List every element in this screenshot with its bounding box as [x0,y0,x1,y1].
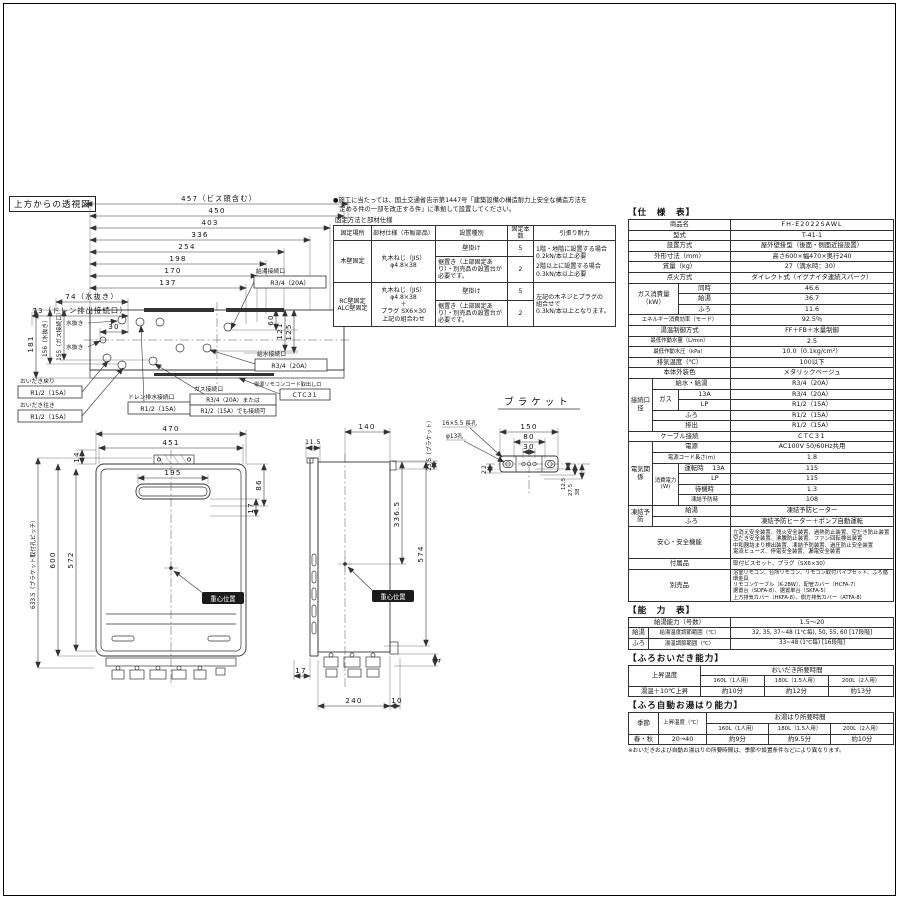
spec-dims-label: 外形寸法（mm） [629,251,731,262]
rc-place-line1: RC壁固定 [335,298,370,305]
topview-left-dims [32,310,149,378]
front-dim-195: 195 [164,468,181,477]
oidaki-col-rise: 上昇温度 [629,665,701,686]
yuhari-col-season: 季節 [629,713,659,734]
wood-pull-line1b: 0.2kN/本以上必要 [536,253,614,260]
gas-size-1: R3/4（20A）または [206,397,260,404]
rc-place-line2: ALC壁固定 [335,305,370,312]
spec-gas-row1-label: 給湯 [679,294,731,305]
capacity-title: 【能 力 表】 [628,604,898,616]
side-ext-lines [294,428,438,710]
spec-minflow-value: 2.5 [731,336,894,347]
spec-frost-hot-label: 給湯 [653,506,731,517]
capacity-hot-label: 給湯 [629,628,649,639]
cord-size: CTC31 [292,392,317,399]
label-bath-return: おいだき戻り R1/2（15A） [18,361,108,398]
dim-121: 121 [275,322,284,339]
spec-frost-furo-value: 凍結予防ヒーター＋ポンプ自動運転 [731,516,894,527]
fixing-wood-num1: 5 [508,241,534,257]
spec-watt-lp-value: 115 [731,474,894,485]
spec-accessory-label: 付属品 [629,559,731,570]
yuhari-size-180: 180L（1.5人用） [769,723,831,734]
cord-name: 電源リモコンコード取出し口 [254,380,321,388]
bracket-hole-labels: 16×5.5 長孔 φ13孔 [442,419,504,462]
oidaki-size-200: 200L（2人用） [829,676,894,687]
dim-457: 457（ビス頭含む） [181,194,257,203]
capacity-furo-label: ふろ [629,639,649,650]
rc-part-line1: 丸木ねじ（JIS） [373,287,434,294]
side-dim-574: 574 [416,545,425,562]
side-dim-11-5: 11.5 [305,439,321,446]
fixing-rc-place: RC壁固定 ALC壁固定 [334,283,372,327]
spec-weight-label: 質量（kg） [629,262,731,273]
spec-color-label: 本体外装色 [629,368,731,379]
spec-install-label: 設置方式 [629,241,731,252]
hot-out-name: 給湯接続口 [256,267,285,275]
bracket-body [486,448,590,494]
spec-frost-hot-value: 凍結予防ヒーター [731,506,894,517]
spec-table: 商品名FH-E2022SAWL 型式T-41-1 設置方式屋外壁掛型（後面・側面… [628,219,894,602]
water-in-name: 給水接続口 [257,350,286,358]
bath-go-name: おいだき往き [20,401,55,409]
yuhari-size-160: 160L（1人用） [707,723,769,734]
spec-gas-row2-label: ふろ [679,304,731,315]
spec-conn-gaslp-label: LP [679,400,731,411]
oidaki-size-160: 160L（1人用） [701,676,765,687]
wood-part-line2: φ4.8×38 [373,262,434,269]
capacity-hot-range-value: 32, 35, 37~48 (1℃毎), 50, 55, 60 [17段階] [731,628,894,639]
spec-conn-gas13-label: 13A [679,389,731,400]
spec-wattage-label: 消費電力(W) [653,463,679,505]
yuhari-size-200: 200L（2人用） [831,723,894,734]
dim-336: 336 [191,230,208,239]
spec-safety-label: 安心・安全機能 [629,527,731,559]
side-dim-17: 17 [295,666,307,675]
drain-name: ドレン排水接続口 [128,393,175,401]
oidaki-title: 【ふろおいだき能力】 [628,652,898,664]
side-dim-23-5: 23.5（ブラケット） [425,417,433,471]
spec-gas-row0-label: 同時 [679,283,731,294]
spec-watt-standby-value: 1.3 [731,484,894,495]
side-dim-lines [294,432,435,706]
spec-accessory-value: 取付ビスセット、プラグ（SX6×30） [731,559,894,570]
watt-13a-label: 13A [712,465,725,473]
spec-safety-value: 立消え安全装置、残火安全装置、過熱防止装置、空だき防止装置 空だき安全装置、沸騰… [731,527,894,559]
fixing-rc-num1: 5 [508,283,534,301]
bracket-dim-38: 38 [575,488,581,495]
side-cog: 重心位置 [338,557,414,602]
bath-return-size: R1/2（15A） [30,390,69,397]
spec-ctrl-value: FF＋FB＋水量制御 [731,325,894,336]
bath-return-name: おいだき戻り [20,377,55,385]
dim-403: 403 [201,218,218,227]
spec-model-label: 型式 [629,230,731,241]
front-dim-470: 470 [162,424,179,433]
fixing-header-part: 部材仕様（市販部品） [372,226,436,241]
spec-watt-runlp-label: LP [679,474,731,485]
yuhari-season: 春・秋 [629,734,659,745]
spec-title: 【仕 様 表】 [628,206,898,218]
mizunuki-label-2: 水抜き [66,343,83,351]
fixing-wood-part: 丸木ねじ（JIS） φ4.8×38 [372,241,436,283]
optional-line-4: 上方排気カバー（HKFA-8）、側方排気カバー（ATFA-8） [733,595,892,601]
watt-run-label: 運転時 [684,465,703,473]
yuhari-col-time: お湯はり所要時間 [707,713,894,724]
side-dim-10: 10 [391,696,403,705]
bracket-dim-22: 22 [481,464,488,474]
spec-conn-gaslp-value: R1/2（15A） [731,400,894,411]
wood-part-line1: 丸木ねじ（JIS） [373,255,434,262]
spec-ignition-label: 点火方式 [629,272,731,283]
spec-product-label: 商品名 [629,220,731,231]
bracket-hole1-label: 16×5.5 長孔 [442,419,477,427]
fixing-wood-type2: 据置き（上部固定あり）・別売品の設置台が必要です。 [436,257,508,283]
rc-part-line2: φ4.8×38 [373,294,434,301]
front-cog-label: 重心位置 [210,594,235,603]
dim-30: 30 [108,322,120,331]
bracket-hole2-label: φ13孔 [446,432,463,440]
spec-ctrl-label: 湯温制御方式 [629,325,731,336]
spec-gas-label: ガス消費量（kW） [629,283,679,315]
fixing-note-line2: 定める件の一部を改正する件」に準拠して設置してください。 [333,206,625,215]
spec-eff-label: エネルギー消費効率（モード） [629,315,731,326]
dim-74: 74（水抜き） [65,292,118,301]
spec-watt-frost-value: 108 [731,495,894,506]
bracket-dim-80: 80 [523,432,535,441]
spec-weight-value: 27（満水時：30） [731,262,894,273]
rc-part-line4: プラグ SX6×30 [373,308,434,315]
fixing-table: 固定場所 部材仕様（市販部品） 設置種別 固定本数 引張り耐力 木壁固定 丸木ね… [333,225,616,327]
yuhari-rise: 20→40 [659,734,707,745]
spec-cable-label: ケーブル接続 [629,431,731,442]
front-dim-633-5: 633.5（ブラケット取付孔ピッチ） [29,517,37,609]
side-cog-label: 重心位置 [380,592,405,601]
capacity-furo-range-value: 33~48 (1℃毎) [16段階] [731,639,894,650]
yuhari-time-200: 約10分 [831,734,894,745]
yuhari-table: 季節上昇温度（℃）お湯はり所要時間 160L（1人用）180L（1.5人用）20… [628,712,894,745]
spec-watt-13a-value: 115 [731,463,894,474]
spec-gas-row1-value: 36.7 [731,294,894,305]
fixing-caption: 固定方法と部材仕様 [335,215,625,224]
rc-part-line5: 上記の組合わせ [373,316,434,323]
wood-pull-line2b: 0.3kN/本以上必要 [536,271,614,278]
yuhari-time-160: 約9分 [707,734,769,745]
bracket-dim-12-5: 12.5 [561,477,567,490]
dim-137: 137 [159,278,176,287]
fixing-rc-type2: 据置き（上部固定あり）・別売品の設置台が必要です。 [436,301,508,327]
spec-product-value: FH-E2022SAWL [731,220,894,231]
fixing-rc-pull: 左記の木ネジとプラグの 組合せで 0.3kN/本以上となります。 [534,283,616,327]
oidaki-time-160: 約10分 [701,686,765,697]
bracket-drawing: ブラケット 150 80 30 22 12.5 27.5 38 16×5.5 長… [440,392,636,522]
front-dim-14: 14 [72,451,81,463]
side-dim-336-5: 336.5 [392,501,401,528]
spec-section: 【仕 様 表】 商品名FH-E2022SAWL 型式T-41-1 設置方式屋外壁… [628,204,898,754]
spec-minpress-value: 10.0（0.1kg/cm²） [731,347,894,358]
topview-drawing: 457（ビス頭含む） 450 403 336 254 198 170 137 7… [4,192,372,434]
dim-60: 60 [266,314,275,326]
topview-ports [100,316,232,369]
spec-exhaust-label: 排気温度（℃） [629,357,731,368]
fixing-rc-type1: 壁掛け [436,283,508,301]
fixing-rc-num2: 2 [508,301,534,327]
spec-conn-water-value: R3/4（20A） [731,378,894,389]
spec-watt-frost-label: 凍結予防時 [679,495,731,506]
spec-gas-row0-value: 46.6 [731,283,894,294]
front-dim-600: 600 [48,551,57,568]
oidaki-size-180: 180L（1.5人用） [765,676,829,687]
dim-125: 125 [284,323,293,340]
capacity-table: 給湯能力（号数）1.5～20 給湯給湯温度調節範囲（℃）32, 35, 37~4… [628,617,894,650]
spec-power-value: AC100V 50/60Hz共用 [731,442,894,453]
fixing-header-place: 固定場所 [334,226,372,241]
wood-pull-line2: 2階以上に設置する場合 [536,263,614,270]
dim-73: 73（ドレン排出接続口） [32,306,127,315]
fixing-rc-part: 丸木ねじ（JIS） φ4.8×38 ＋ プラグ SX6×30 上記の組合わせ [372,283,436,327]
yuhari-note: ※おいだきおよび自動お湯はりの所要時間は、季節や設置条件などにより異なります。 [628,746,898,754]
fixing-header-pull: 引張り耐力 [534,226,616,241]
gas-size-2: R1/2（15A）でも接続可 [200,407,265,415]
spec-watt-standby-label: 待機時 [679,484,731,495]
oidaki-time-180: 約12分 [765,686,829,697]
fixing-wood-num2: 2 [508,257,534,283]
spec-install-value: 屋外壁掛型（後面・側面近接設置） [731,241,894,252]
spec-eff-value: 92.5％ [731,315,894,326]
oidaki-table: 上昇温度おいだき所要時間 160L（1人用）180L（1.5人用）200L（2人… [628,665,894,698]
spec-power-label: 電源 [653,442,731,453]
spec-optional-label: 別売品 [629,569,731,601]
front-ext-lines [38,430,268,668]
side-dim-4: 4 [434,657,443,663]
fixing-header-num: 固定本数 [508,226,534,241]
capacity-furo-range-label: 湯温調節範囲（℃） [649,639,731,650]
spec-conn-drain-value: R1/2（15A） [731,421,894,432]
spec-conn-furo-label: ふろ [653,410,731,421]
spec-minflow-label: 最低作動水量（L/min） [629,336,731,347]
spec-frost-furo-label: ふろ [653,516,731,527]
spec-watt-run13a-label: 運転時13A [679,463,731,474]
fixing-header-type: 設置種別 [436,226,508,241]
fixing-section: ●施工に当たっては、国土交通省告示第1447号「建築設備の構造耐力上安全な構造方… [333,197,625,327]
spec-cord-label: 電源コード長さ(m) [653,453,731,464]
capacity-hot-range-label: 給湯温度調節範囲（℃） [649,628,731,639]
fixing-wood-pull: 1階・地階に設置する場合 0.2kN/本以上必要 2階以上に設置する場合 0.3… [534,241,616,283]
front-view-drawing: 470 451 14 195 633.5（ブラケット取付孔ピッチ） 600 57… [16,418,296,755]
spec-exhaust-value: 100以下 [731,357,894,368]
front-dim-451: 451 [162,438,179,447]
capacity-r1-label: 給湯能力（号数） [629,617,731,628]
gas-name: ガス接続口 [194,385,223,393]
dim-450: 450 [208,206,225,215]
dim-254: 254 [178,242,195,251]
front-dim-17: 17 [246,502,255,514]
spec-minpress-label: 最低作動水圧（kPa） [629,347,731,358]
front-dim-572: 572 [66,551,75,568]
spec-model-value: T-41-1 [731,230,894,241]
hot-out-size: R3/4（20A） [270,280,309,287]
front-dim-86: 86 [254,479,263,491]
side-bottom-pipes [324,653,380,677]
bracket-dim-150: 150 [520,422,537,431]
drain-size: R1/2（15A） [140,406,179,413]
oidaki-row-label: 湯温＋10℃上昇 [629,686,701,697]
spec-cord-value: 1.8 [731,453,894,464]
oidaki-time-200: 約13分 [829,686,894,697]
label-water-in: 給水接続口 R3/4（20A） [210,350,327,371]
spec-conn-drain-label: 排出 [653,421,731,432]
side-dim-140: 140 [358,422,375,431]
dim-198: 198 [169,254,186,263]
fixing-wood-type1: 壁掛け [436,241,508,257]
spec-color-value: メタリックベージュ [731,368,894,379]
spec-conn-gas-label: ガス [653,389,679,410]
yuhari-col-rise: 上昇温度（℃） [659,713,707,734]
dim-181: 181 [26,335,35,352]
mizunuki-label-1: 水抜き [66,319,83,327]
spec-cable-value: CTC31 [731,431,894,442]
spec-gas-row2-value: 11.6 [731,304,894,315]
dim-156: 156（水抜き） [41,317,49,357]
side-dim-240: 240 [345,696,362,705]
rc-pull-line3: 0.3kN/本以上となります。 [536,308,614,315]
front-cog: 重心位置 [164,561,244,604]
capacity-r1-value: 1.5～20 [731,617,894,628]
fixing-note-line1: ●施工に当たっては、国土交通省告示第1447号「建築設備の構造耐力上安全な構造方… [333,197,625,206]
oidaki-col-time: おいだき所要時間 [701,665,894,676]
bracket-dim-27-5: 27.5 [568,483,574,496]
dim-170: 170 [164,266,181,275]
spec-conn-gas13-value: R3/4（20A） [731,389,894,400]
spec-dims-value: 高さ600×幅470×奥行240 [731,251,894,262]
dim-155: 155（ガス接続口） [55,309,63,361]
water-in-size: R3/4（20A） [271,363,310,370]
bracket-title: ブラケット [504,396,572,408]
spec-conn-water-label: 給水・給湯 [653,378,731,389]
spec-optional-value: 浴室リモコン、台所リモコン、リモコン取付パイプセット、ふろ循環金具 リモコンケー… [731,569,894,601]
fixing-wood-place: 木壁固定 [334,241,372,283]
yuhari-time-180: 約9.5分 [769,734,831,745]
safety-line-4: 電流ヒューズ、停電安全装置、漏電安全装置 [733,549,892,555]
spec-ignition-value: ダイレクト式（イグナイタ連続スパーク） [731,272,894,283]
optional-line-1: 浴室リモコン、台所リモコン、リモコン取付パイプセット、ふろ循環金具 [733,570,892,582]
yuhari-title: 【ふろ自動お湯はり能力】 [628,699,898,711]
watt-lp-label: LP [711,475,718,483]
spec-conn-furo-value: R1/2（15A） [731,410,894,421]
